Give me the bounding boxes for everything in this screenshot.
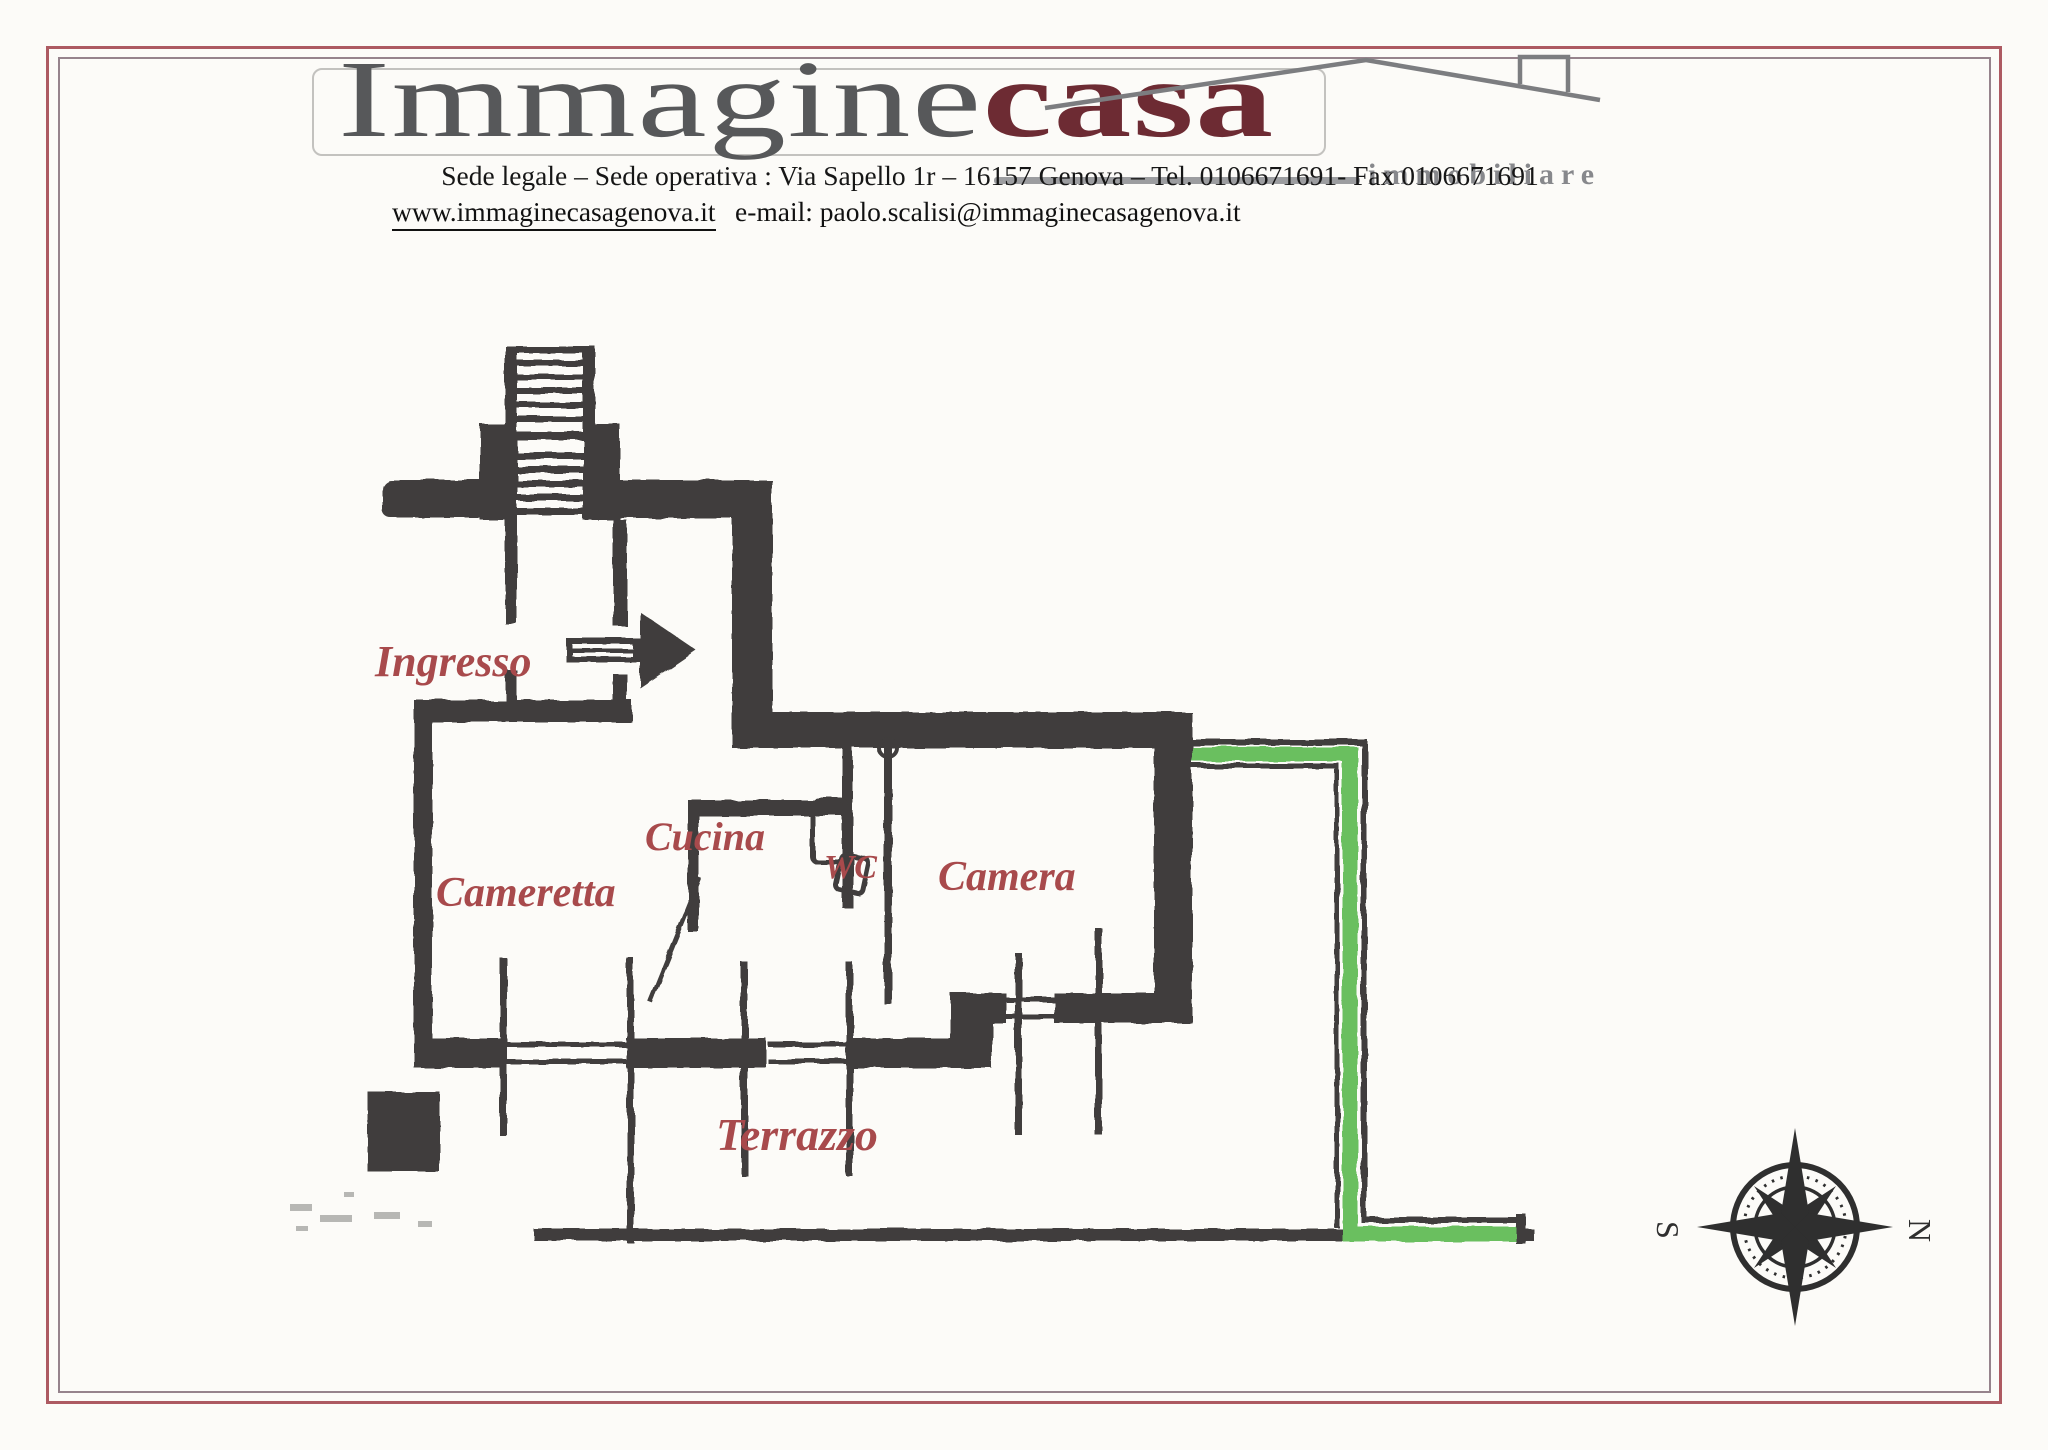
floor-plan-svg: Ingresso Cameretta Cucina WC Camera Terr… <box>0 0 2048 1450</box>
compass-label-south: S <box>1650 1221 1686 1239</box>
room-label-camera: Camera <box>938 854 1076 900</box>
room-label-terrazzo: Terrazzo <box>716 1109 878 1160</box>
noise-specks <box>290 1192 432 1231</box>
room-label-cameretta: Cameretta <box>436 870 616 916</box>
room-label-wc: WC <box>824 849 877 886</box>
compass-rose-icon: S N <box>1650 1128 1938 1326</box>
logo-roof-icon <box>1045 57 1600 108</box>
door-swing-line <box>650 878 700 1002</box>
document-page: Immaginecasa immobiliare Sede legale – S… <box>0 0 2048 1450</box>
room-label-ingresso: Ingresso <box>374 637 532 686</box>
green-highlight-path <box>1192 742 1526 1244</box>
entry-arrow-icon <box>566 612 696 688</box>
compass-label-north: N <box>1902 1219 1938 1242</box>
room-label-cucina: Cucina <box>645 814 765 859</box>
